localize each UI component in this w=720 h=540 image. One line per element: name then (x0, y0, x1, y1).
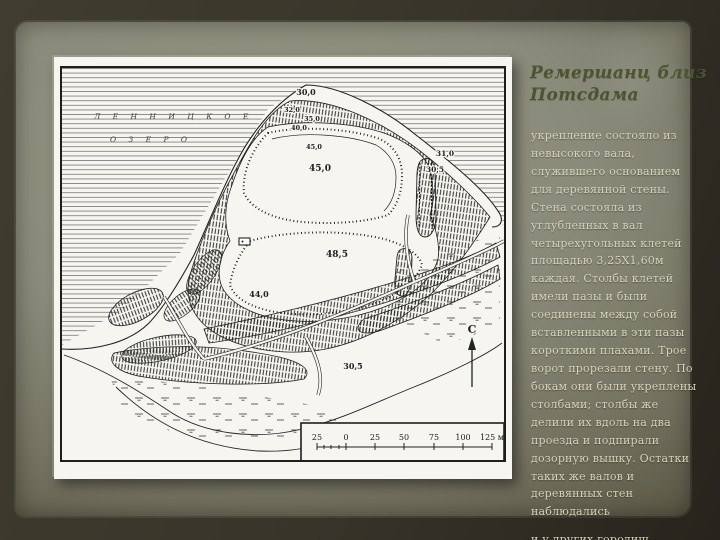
elevation-label: 48,5 (326, 250, 348, 260)
lake-name-line1: Л Е Н Н И Ц К О Е (93, 112, 253, 121)
body-paragraph-1: укрепление состояло из невысокого вала, … (531, 127, 701, 521)
scale-tick-label: 25 (312, 433, 322, 442)
slide-title-line2: Потсдама (530, 84, 710, 106)
body-paragraph-2: и у других городищ. (531, 531, 701, 540)
elevation-label: 40,0 (291, 124, 307, 132)
presentation-slide: Л Е Н Н И Ц К О Е О З Е Р О 30,0 32,0 35… (0, 0, 720, 540)
slide-body-text: укрепление состояло из невысокого вала, … (531, 127, 701, 540)
elevation-label: 32,0 (284, 106, 300, 114)
slide-title: Ремершанц близ Потсдама (530, 62, 710, 106)
scale-tick-label: 50 (399, 433, 409, 442)
lake-name-line2: О З Е Р О (110, 135, 192, 144)
elevation-label: 30,5 (343, 361, 362, 371)
map-figure: Л Е Н Н И Ц К О Е О З Е Р О 30,0 32,0 35… (54, 57, 512, 479)
slide-title-line1: Ремершанц близ (530, 62, 710, 84)
elevation-label: 35,0 (304, 115, 320, 123)
elevation-label: 44,0 (249, 289, 269, 299)
scale-tick-label: 0 (343, 433, 348, 442)
scale-tick-label: 25 (370, 433, 380, 442)
elevation-label: 30,0 (296, 87, 316, 97)
scale-tick-label: 75 (429, 433, 439, 442)
scale-tick-label: 125 м (480, 433, 504, 442)
elevation-label: 45,0 (309, 164, 331, 174)
scale-tick-label: 100 (455, 433, 470, 442)
scale-bar: 25 0 25 50 75 100 125 м (301, 423, 504, 461)
elevation-label: 31,0 (436, 149, 454, 158)
excavation-marker (239, 238, 250, 245)
elevation-label: 30,5 (426, 165, 444, 174)
elevation-label: 45,0 (306, 143, 322, 151)
hillfort-plan-svg: Л Е Н Н И Ц К О Е О З Е Р О 30,0 32,0 35… (54, 57, 512, 479)
north-label: С (468, 323, 477, 336)
